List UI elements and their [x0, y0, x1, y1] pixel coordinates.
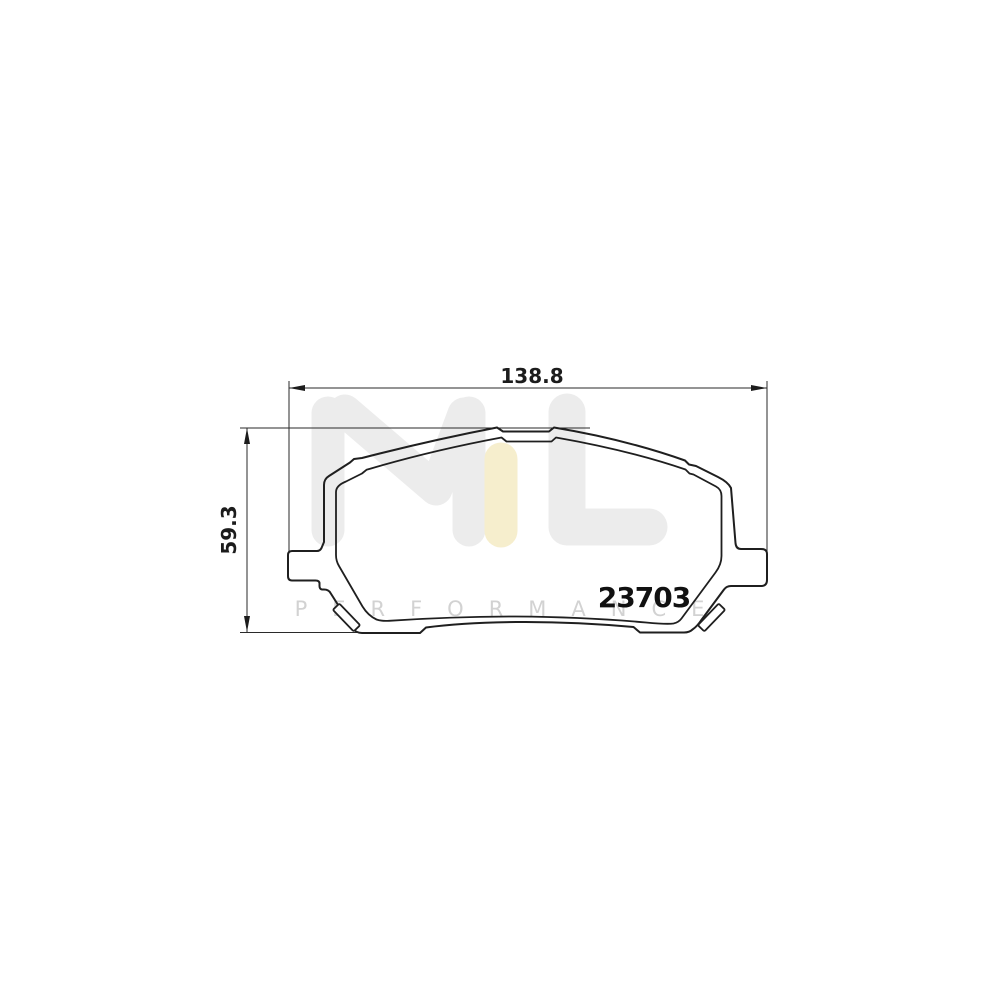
arrow-down-icon	[244, 616, 250, 632]
brake-pad-technical-drawing: PERFORMANCE 138.8 59.3	[0, 0, 1000, 1000]
arrow-left-icon	[289, 385, 305, 391]
watermark-letter-l	[567, 412, 649, 527]
watermark-letter-m	[328, 411, 469, 530]
technical-drawing-page: PERFORMANCE 138.8 59.3	[0, 0, 1000, 1000]
height-dimension-label: 59.3	[217, 505, 241, 554]
arrow-up-icon	[244, 428, 250, 444]
arrow-right-icon	[751, 385, 767, 391]
width-dimension-label: 138.8	[500, 364, 563, 388]
part-number-label: 23703	[598, 581, 690, 614]
